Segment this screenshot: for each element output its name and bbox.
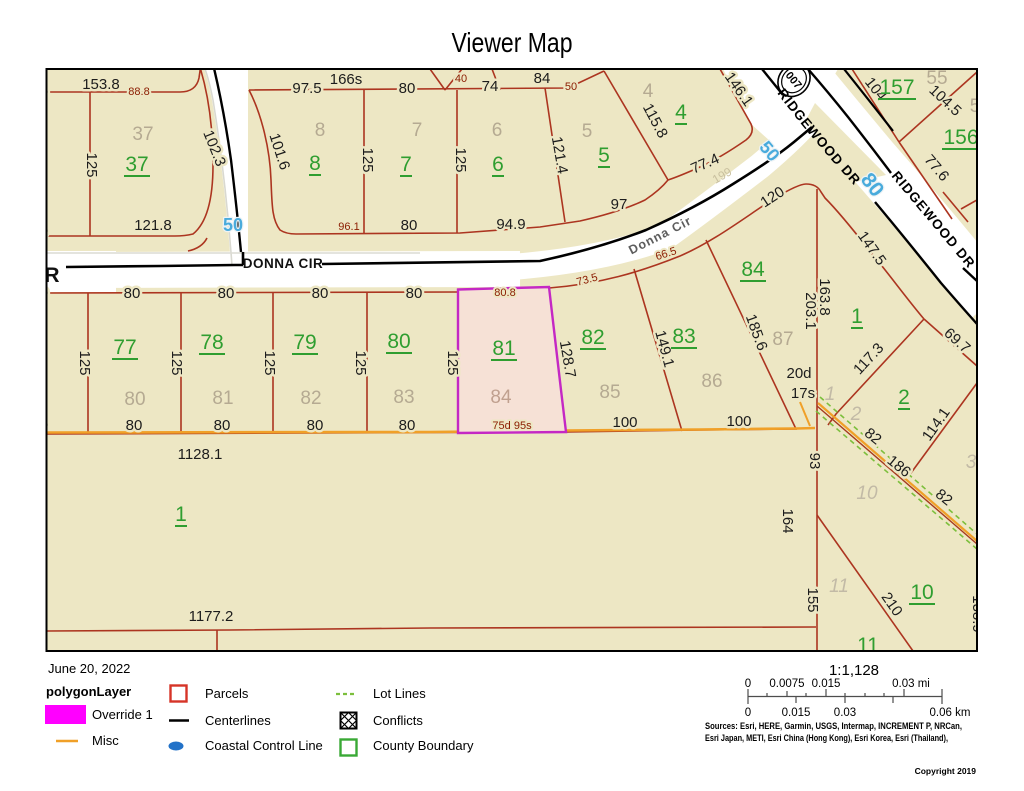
svg-text:37: 37: [132, 124, 153, 145]
svg-text:0.015: 0.015: [782, 707, 811, 719]
svg-text:81: 81: [212, 388, 233, 409]
svg-text:Conflicts: Conflicts: [373, 713, 423, 728]
svg-text:6: 6: [492, 153, 504, 176]
svg-text:96.1: 96.1: [338, 221, 359, 233]
svg-text:DONNA CIR: DONNA CIR: [243, 256, 324, 271]
svg-text:0: 0: [745, 678, 751, 690]
svg-text:Centerlines: Centerlines: [205, 713, 271, 728]
svg-text:87: 87: [772, 329, 793, 350]
svg-text:85: 85: [599, 382, 620, 403]
svg-text:Sources: Esri, HERE, Garmin: Sources: Esri, HERE, Garmin, USGS, Inter…: [705, 721, 962, 731]
svg-text:polygonLayer: polygonLayer: [46, 684, 131, 699]
svg-text:10: 10: [910, 581, 933, 604]
svg-text:80: 80: [387, 330, 410, 353]
svg-text:125: 125: [83, 152, 100, 177]
svg-text:166s: 166s: [330, 71, 363, 88]
svg-text:156: 156: [943, 126, 978, 149]
svg-text:80: 80: [401, 217, 418, 234]
svg-text:4: 4: [643, 81, 654, 102]
svg-text:153.8: 153.8: [82, 76, 120, 93]
svg-text:80.8: 80.8: [494, 287, 515, 299]
svg-text:4: 4: [675, 101, 687, 124]
svg-text:100: 100: [612, 414, 637, 431]
svg-text:157: 157: [879, 76, 914, 99]
svg-text:37: 37: [125, 153, 148, 176]
svg-text:125: 125: [352, 350, 369, 375]
svg-text:Override 1: Override 1: [92, 707, 153, 722]
svg-text:0: 0: [745, 707, 751, 719]
svg-text:Coastal Control Line: Coastal Control Line: [205, 738, 323, 753]
svg-text:1: 1: [851, 305, 863, 328]
svg-text:75d 95s: 75d 95s: [492, 420, 532, 432]
svg-text:Viewer Map: Viewer Map: [452, 27, 573, 58]
svg-text:0.06 km: 0.06 km: [930, 707, 971, 719]
svg-text:82: 82: [300, 388, 321, 409]
svg-text:6: 6: [492, 120, 503, 141]
svg-text:77: 77: [113, 336, 136, 359]
svg-text:0.03 mi: 0.03 mi: [892, 678, 930, 690]
svg-text:97: 97: [611, 196, 628, 213]
svg-text:1: 1: [175, 503, 187, 526]
svg-text:88.8: 88.8: [128, 86, 149, 98]
svg-text:8: 8: [315, 120, 326, 141]
svg-text:125: 125: [261, 350, 278, 375]
svg-text:80: 80: [312, 285, 329, 302]
svg-text:5: 5: [582, 121, 593, 142]
svg-text:83: 83: [672, 325, 695, 348]
svg-text:84: 84: [490, 387, 512, 408]
svg-text:Esri Japan, METI, Esri China (: Esri Japan, METI, Esri China (Hong Kong)…: [705, 733, 948, 743]
svg-text:78: 78: [200, 331, 223, 354]
svg-text:80: 80: [218, 285, 235, 302]
svg-text:2: 2: [850, 404, 862, 425]
svg-text:0.015: 0.015: [812, 678, 841, 690]
svg-text:50: 50: [223, 215, 243, 235]
svg-text:79: 79: [293, 331, 316, 354]
svg-text:125: 125: [444, 350, 461, 375]
svg-text:80: 80: [399, 80, 416, 97]
svg-text:84: 84: [534, 70, 551, 87]
svg-text:80: 80: [307, 417, 324, 434]
svg-text:82: 82: [581, 326, 604, 349]
svg-text:86: 86: [701, 371, 722, 392]
svg-text:7: 7: [400, 153, 412, 176]
svg-text:55: 55: [926, 68, 947, 89]
svg-text:20d: 20d: [786, 365, 811, 382]
svg-text:81: 81: [492, 337, 515, 360]
svg-text:50: 50: [565, 81, 577, 93]
svg-text:74: 74: [482, 78, 499, 95]
svg-text:94.9: 94.9: [496, 216, 525, 233]
svg-text:1177.2: 1177.2: [189, 608, 234, 625]
svg-text:80: 80: [214, 417, 231, 434]
svg-text:125: 125: [452, 147, 469, 172]
svg-text:97.5: 97.5: [292, 80, 321, 97]
svg-text:125: 125: [168, 350, 185, 375]
svg-text:5: 5: [598, 144, 610, 167]
svg-text:7: 7: [412, 120, 423, 141]
svg-text:3: 3: [966, 452, 977, 473]
svg-text:0.03: 0.03: [834, 707, 856, 719]
svg-text:17s: 17s: [791, 385, 815, 402]
svg-text:Parcels: Parcels: [205, 686, 249, 701]
svg-text:80: 80: [124, 285, 141, 302]
svg-text:84: 84: [741, 258, 765, 281]
svg-text:1: 1: [825, 384, 836, 405]
svg-text:2: 2: [898, 386, 910, 409]
svg-text:125: 125: [359, 147, 376, 172]
svg-text:10: 10: [856, 483, 878, 504]
svg-text:93: 93: [806, 453, 823, 470]
svg-text:Lot Lines: Lot Lines: [373, 686, 426, 701]
svg-text:164: 164: [779, 508, 796, 533]
svg-text:Copyright 2019: Copyright 2019: [915, 766, 977, 776]
svg-text:100: 100: [726, 413, 751, 430]
svg-text:163.8: 163.8: [816, 278, 833, 316]
svg-text:11: 11: [829, 576, 849, 597]
svg-text:83: 83: [393, 387, 414, 408]
svg-text:80: 80: [399, 417, 416, 434]
svg-text:Misc: Misc: [92, 733, 119, 748]
svg-text:1:1,128: 1:1,128: [829, 662, 879, 679]
svg-text:County Boundary: County Boundary: [373, 738, 474, 753]
svg-text:155: 155: [804, 587, 821, 612]
svg-text:80: 80: [406, 285, 423, 302]
svg-text:80: 80: [124, 389, 145, 410]
svg-text:8: 8: [309, 152, 321, 175]
svg-text:0.0075: 0.0075: [769, 678, 804, 690]
svg-text:125: 125: [76, 350, 93, 375]
svg-text:121.8: 121.8: [134, 217, 172, 234]
svg-text:1128.1: 1128.1: [178, 446, 223, 463]
svg-text:80: 80: [126, 417, 143, 434]
svg-text:40: 40: [455, 73, 467, 85]
svg-text:June 20, 2022: June 20, 2022: [48, 661, 130, 676]
